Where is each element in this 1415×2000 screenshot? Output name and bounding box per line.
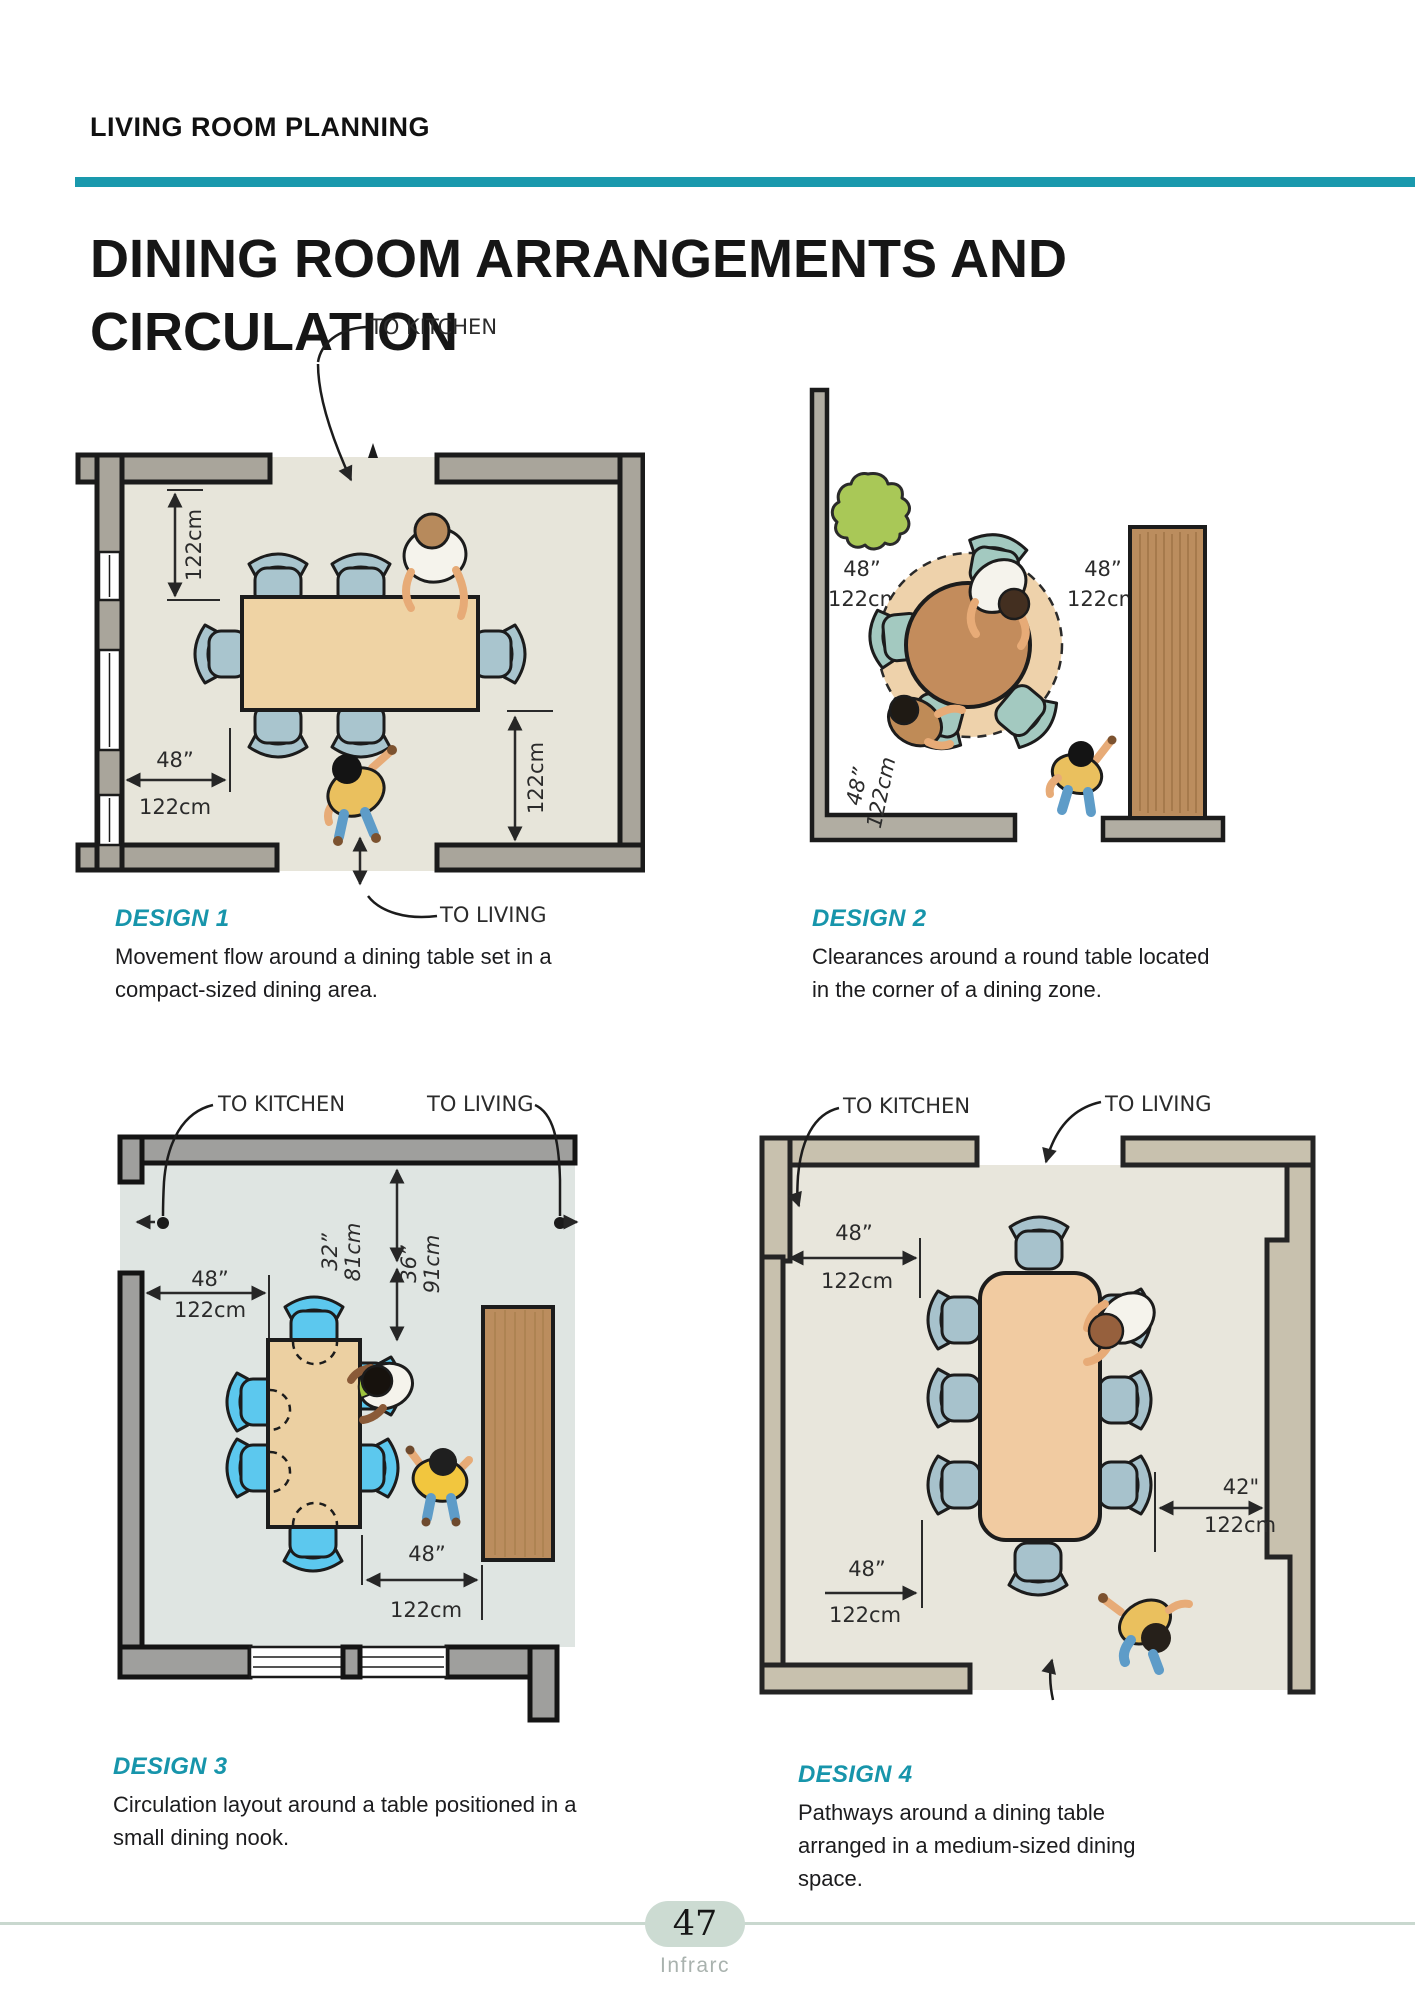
svg-text:48”: 48” — [191, 1267, 229, 1291]
book-page: LIVING ROOM PLANNING DINING ROOM ARRANGE… — [0, 0, 1415, 2000]
brand-name: Infrarc — [600, 1954, 790, 1978]
plant-icon — [832, 473, 909, 548]
svg-text:122cm: 122cm — [821, 1269, 893, 1293]
kitchen-door-opening — [270, 457, 437, 483]
page-number: 47 — [673, 1904, 718, 1944]
to-living-label: TO LIVING — [1104, 1092, 1211, 1116]
dimension-label: 48” — [1084, 557, 1122, 581]
dining-table — [242, 597, 478, 710]
design-3-caption: DESIGN 3 Circulation layout around a tab… — [113, 1753, 591, 1854]
design-2-floor-plan: 48” 122cm 48” 122cm — [800, 370, 1240, 850]
design-3-label: DESIGN 3 — [113, 1753, 591, 1781]
svg-text:91cm: 91cm — [420, 1235, 444, 1294]
to-kitchen-label: TO KITCHEN — [842, 1094, 970, 1118]
design-3-description: Circulation layout around a table positi… — [113, 1788, 591, 1854]
design-3-floor-plan: TO KITCHEN TO LIVING 48” 122cm 32” 81cm … — [85, 1080, 585, 1730]
wall-under-cabinet — [1103, 818, 1223, 840]
sideboard-cabinet — [1130, 527, 1205, 818]
to-kitchen-label: TO KITCHEN — [369, 315, 497, 339]
window-bottom — [250, 1647, 447, 1677]
dimension-label: 48” — [156, 748, 194, 772]
svg-text:81cm: 81cm — [341, 1223, 365, 1282]
design-4-floor-plan: TO KITCHEN TO LIVING 48” 122cm 48” 122cm… — [755, 1080, 1345, 1740]
design-4-label: DESIGN 4 — [798, 1761, 1150, 1789]
windows — [99, 552, 120, 845]
svg-text:42": 42" — [1223, 1475, 1259, 1499]
svg-text:48”: 48” — [835, 1221, 873, 1245]
leader-arrow — [1046, 1102, 1101, 1162]
svg-text:122cm: 122cm — [390, 1598, 462, 1622]
dimension-label: 122cm — [182, 509, 206, 581]
dimension-label: 122cm — [524, 742, 548, 814]
flow-arrow-up-icon — [368, 443, 378, 458]
page-title-line1: DINING ROOM ARRANGEMENTS AND — [90, 223, 1067, 296]
to-living-label: TO LIVING — [426, 1092, 533, 1116]
design-4-description: Pathways around a dining table arranged … — [798, 1796, 1150, 1895]
design-1-label: DESIGN 1 — [115, 905, 593, 933]
design-2-caption: DESIGN 2 Clearances around a round table… — [812, 905, 1224, 1006]
svg-text:122cm: 122cm — [1204, 1513, 1276, 1537]
svg-text:48”: 48” — [848, 1557, 886, 1581]
dimension-label: 122cm — [139, 795, 211, 819]
section-eyebrow: LIVING ROOM PLANNING — [90, 112, 430, 143]
path-node-dot — [554, 1217, 566, 1229]
page-number-badge: 47 — [645, 1901, 745, 1947]
person-walking — [1048, 736, 1117, 813]
dining-table — [980, 1273, 1100, 1540]
path-node-dot — [157, 1217, 169, 1229]
accent-rule — [75, 177, 1415, 187]
svg-text:48”: 48” — [408, 1542, 446, 1566]
living-door-opening — [277, 845, 437, 871]
svg-text:36”: 36” — [397, 1244, 421, 1283]
design-2-description: Clearances around a round table located … — [812, 940, 1224, 1006]
leader-line — [318, 327, 366, 362]
design-2-label: DESIGN 2 — [812, 905, 1224, 933]
kitchen-door-opening — [120, 1182, 142, 1273]
dimension-label: 48” — [843, 557, 881, 581]
svg-text:122cm: 122cm — [174, 1298, 246, 1322]
design-1-description: Movement flow around a dining table set … — [115, 940, 593, 1006]
design-1-floor-plan: 122cm 48” 122cm 122cm — [75, 300, 645, 940]
design-1-caption: DESIGN 1 Movement flow around a dining t… — [115, 905, 593, 1006]
dining-table — [268, 1340, 360, 1527]
svg-text:32”: 32” — [318, 1232, 342, 1271]
svg-text:122cm: 122cm — [829, 1603, 901, 1627]
design-4-caption: DESIGN 4 Pathways around a dining table … — [798, 1761, 1150, 1895]
to-kitchen-label: TO KITCHEN — [217, 1092, 345, 1116]
wood-bench — [483, 1307, 553, 1560]
